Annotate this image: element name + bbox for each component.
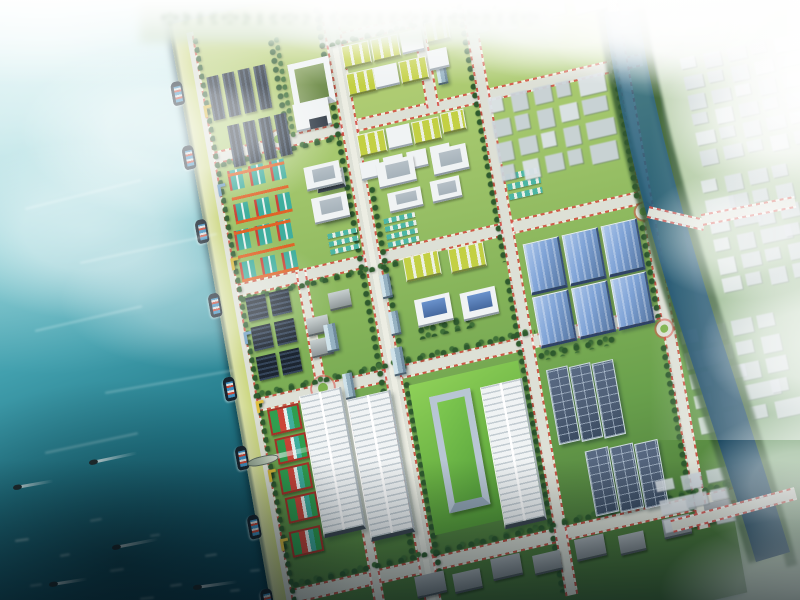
city-block <box>541 131 557 149</box>
city-block <box>537 107 556 129</box>
aerial-render-industrial-port <box>0 0 800 600</box>
city-block <box>488 96 504 114</box>
city-block <box>589 140 619 165</box>
city-block <box>545 152 565 173</box>
city-block <box>522 158 541 180</box>
city-block <box>510 90 529 112</box>
city-block <box>492 117 512 138</box>
city-block <box>559 102 579 123</box>
city-block <box>563 125 582 147</box>
city-block <box>567 148 583 166</box>
city-block <box>514 113 530 131</box>
city-block <box>533 84 553 105</box>
cloud-haze <box>60 230 340 370</box>
vignette-corner <box>0 380 360 600</box>
city-block <box>500 164 516 182</box>
city-block <box>496 140 515 162</box>
atmospheric-haze-right <box>650 0 800 440</box>
city-block <box>581 95 608 115</box>
city-block <box>518 135 538 156</box>
